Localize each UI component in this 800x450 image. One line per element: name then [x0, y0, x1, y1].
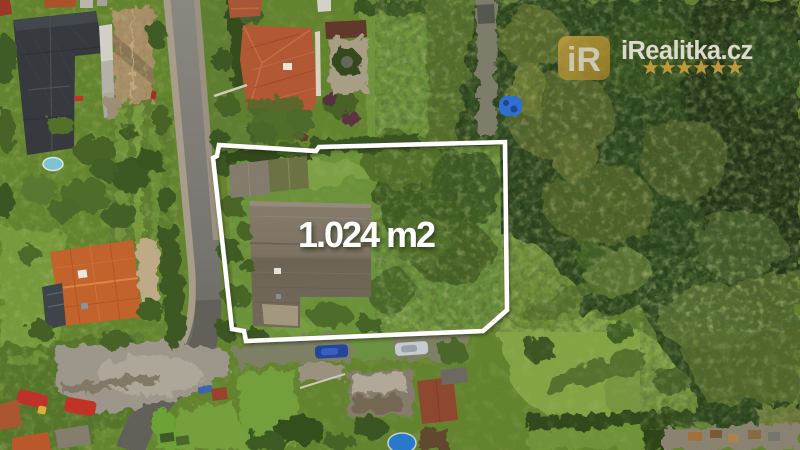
- svg-text:iR: iR: [567, 41, 601, 79]
- svg-text:iRealitka.cz: iRealitka.cz: [621, 37, 753, 65]
- svg-text:1.024 m2: 1.024 m2: [298, 214, 435, 255]
